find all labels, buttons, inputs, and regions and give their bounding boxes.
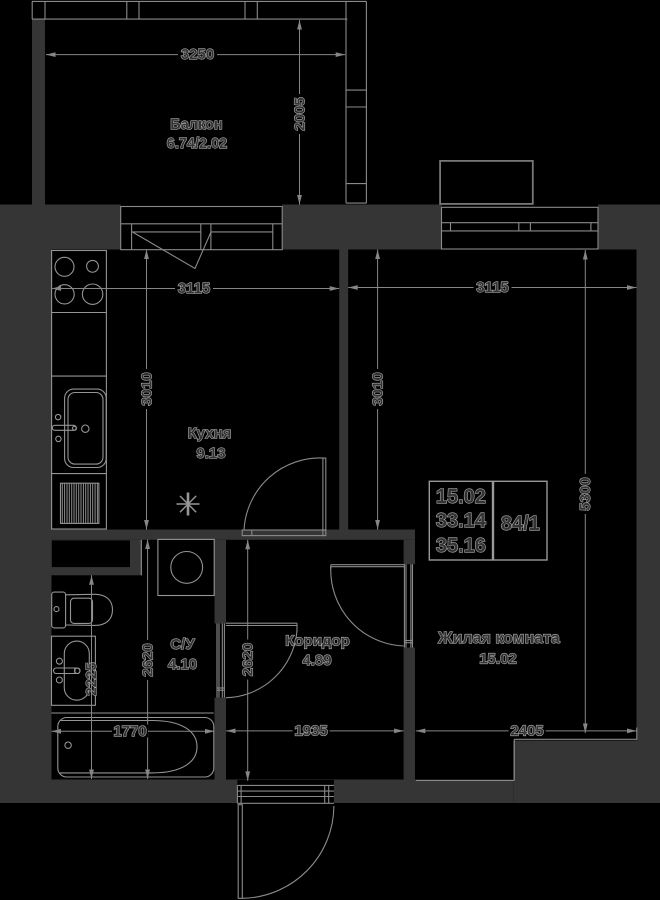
svg-text:2405: 2405 — [510, 722, 543, 739]
svg-text:4.89: 4.89 — [302, 652, 331, 669]
svg-text:33.14: 33.14 — [436, 510, 487, 532]
svg-text:2620: 2620 — [140, 643, 157, 676]
svg-text:6.74/2.02: 6.74/2.02 — [167, 136, 227, 152]
svg-text:Жилая комната: Жилая комната — [437, 630, 560, 647]
svg-text:2005: 2005 — [291, 97, 308, 130]
svg-text:3115: 3115 — [476, 279, 509, 296]
svg-text:4.10: 4.10 — [168, 656, 197, 673]
svg-text:Кухня: Кухня — [188, 425, 232, 442]
svg-text:3010: 3010 — [370, 372, 387, 405]
svg-text:1935: 1935 — [294, 722, 327, 739]
svg-text:35.16: 35.16 — [436, 535, 486, 557]
svg-text:С/У: С/У — [170, 636, 195, 653]
svg-text:1770: 1770 — [113, 723, 146, 740]
svg-text:2620: 2620 — [240, 643, 257, 676]
svg-text:9.13: 9.13 — [196, 445, 225, 462]
svg-text:Коридор: Коридор — [285, 632, 350, 649]
svg-text:3115: 3115 — [178, 280, 211, 297]
svg-text:84/1: 84/1 — [501, 513, 540, 535]
svg-text:15.02: 15.02 — [436, 486, 486, 508]
svg-text:15.02: 15.02 — [479, 650, 517, 667]
svg-text:3010: 3010 — [138, 372, 155, 405]
svg-text:5300: 5300 — [577, 477, 594, 510]
svg-text:3250: 3250 — [181, 46, 214, 63]
svg-text:Балкон: Балкон — [170, 117, 222, 133]
